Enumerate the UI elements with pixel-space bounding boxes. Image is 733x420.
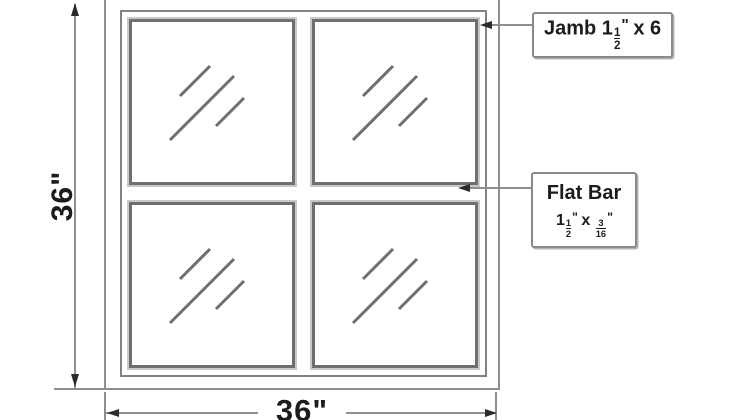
- flat-bar-fraction-2: 316: [596, 219, 606, 240]
- jamb-label: Jamb 112" x 6: [532, 12, 673, 58]
- dim-arrow-up-icon: [71, 3, 79, 16]
- glass-hatch-icon: [315, 205, 475, 365]
- dim-arrow-left-icon: [107, 409, 119, 417]
- dim-arrow-down-icon: [71, 374, 79, 387]
- inch-mark: ": [607, 211, 612, 225]
- glass-hatch-icon: [132, 22, 292, 182]
- height-dim-label: 36": [33, 163, 93, 229]
- jamb-label-suffix: x 6: [628, 17, 661, 39]
- flat-bar-label: Flat Bar 112" x 316": [531, 172, 637, 248]
- jamb-label-prefix: Jamb 1: [544, 17, 613, 39]
- window-shop-drawing: 36" 36" Jamb 112" x 6 Flat Bar 112" x 31…: [0, 0, 733, 420]
- dim-arrow-right-icon: [485, 409, 497, 417]
- leader-arrow-icon: [458, 184, 470, 192]
- window-pane: [312, 202, 478, 368]
- glass-hatch-icon: [315, 22, 475, 182]
- flat-bar-leader-line: [467, 187, 532, 189]
- height-dim-extension-tick: [54, 388, 106, 390]
- leader-arrow-icon: [480, 21, 492, 29]
- flat-bar-label-spec: 112" x 316": [539, 208, 629, 240]
- width-dim-extension-left: [104, 392, 106, 420]
- width-dim-label: 36": [258, 393, 346, 420]
- flat-bar-fraction-1: 12: [566, 219, 571, 240]
- jamb-fraction: 12: [614, 27, 620, 52]
- window-pane: [129, 19, 295, 185]
- window-pane: [312, 19, 478, 185]
- glass-hatch-icon: [132, 205, 292, 365]
- window-pane: [129, 202, 295, 368]
- window-sash: [120, 10, 487, 377]
- jamb-leader-line: [489, 24, 533, 26]
- flat-bar-label-title: Flat Bar: [539, 178, 629, 208]
